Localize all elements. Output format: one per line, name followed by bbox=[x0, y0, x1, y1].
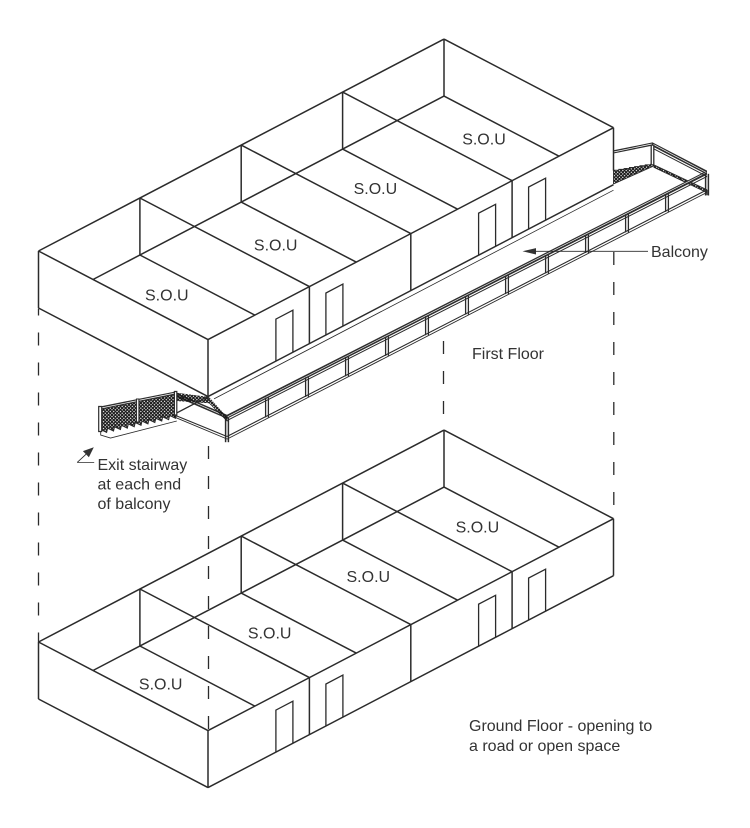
svg-text:S.O.U: S.O.U bbox=[248, 625, 292, 642]
svg-text:S.O.U: S.O.U bbox=[456, 520, 500, 537]
svg-text:S.O.U: S.O.U bbox=[462, 131, 506, 148]
svg-text:First Floor: First Floor bbox=[472, 346, 545, 363]
svg-text:S.O.U: S.O.U bbox=[254, 237, 298, 254]
svg-text:S.O.U: S.O.U bbox=[354, 181, 398, 198]
svg-text:S.O.U: S.O.U bbox=[139, 677, 183, 694]
svg-text:Balcony: Balcony bbox=[651, 244, 708, 261]
svg-text:a road or open space: a road or open space bbox=[469, 738, 620, 755]
svg-text:of balcony: of balcony bbox=[98, 496, 171, 513]
svg-text:S.O.U: S.O.U bbox=[145, 287, 189, 304]
svg-text:at each end: at each end bbox=[98, 477, 182, 494]
svg-text:Exit stairway: Exit stairway bbox=[98, 457, 188, 474]
svg-text:Ground Floor - opening to: Ground Floor - opening to bbox=[469, 718, 652, 735]
svg-text:S.O.U: S.O.U bbox=[347, 569, 391, 586]
